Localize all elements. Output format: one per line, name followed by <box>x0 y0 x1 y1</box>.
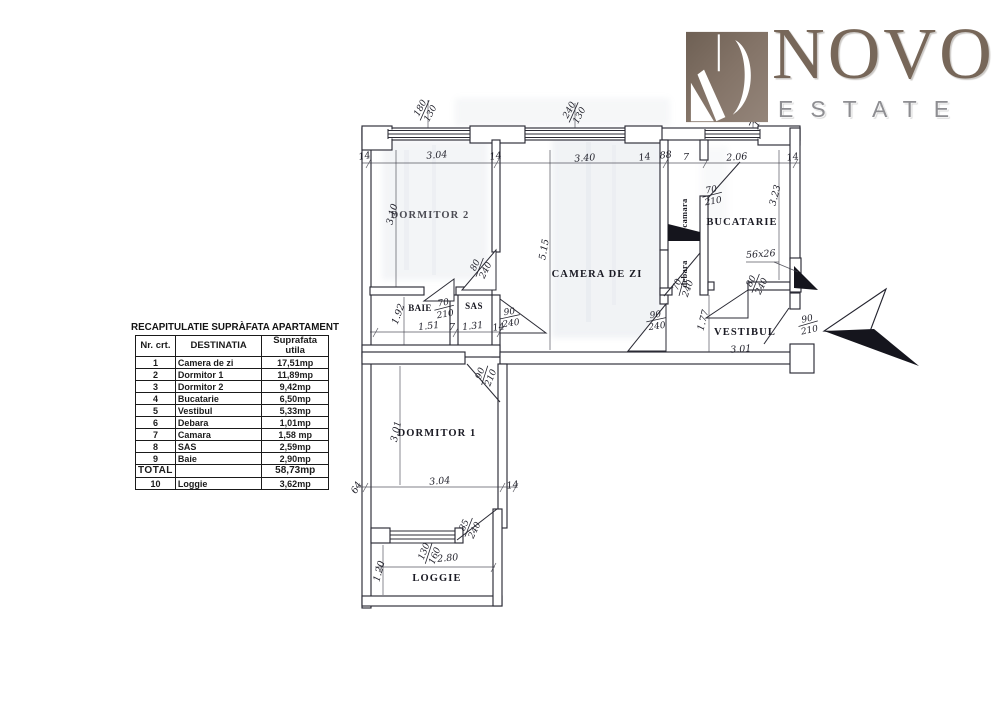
window-loggia <box>390 531 455 543</box>
table-row: 7Camara1,58 mp <box>136 429 329 441</box>
col-header-nr: Nr. crt. <box>136 336 176 357</box>
duct-wedge <box>794 266 818 290</box>
window-size-dormitor2: 180130 <box>411 96 440 126</box>
dim-loggia-height: 1.20 <box>372 560 388 583</box>
dim-camara-width: 88 <box>659 149 672 161</box>
dim-dorm1-height: 3.01 <box>389 420 404 443</box>
window-dormitor2 <box>388 129 470 139</box>
novo-estate-logo: NOVO ESTATE <box>686 28 986 128</box>
door-leaf-entrance <box>764 308 789 344</box>
dim-kitchen-height: 3.23 <box>768 184 784 207</box>
room-label-bucatarie: BUCATARIE <box>706 217 777 228</box>
table-row: 4Bucatarie6,50mp <box>136 393 329 405</box>
table-total-row: TOTAL58,73mp <box>136 465 329 478</box>
col-header-destinatia: DESTINATIA <box>175 336 261 357</box>
door-swing-baie <box>424 279 454 301</box>
area-recap-table: RECAPITULATIE SUPRÀFATA APARTAMENT Nr. c… <box>129 322 329 490</box>
dim-living-width: 3.40 <box>574 152 596 164</box>
dim-living-height: 5.15 <box>537 238 552 261</box>
table-row: 5Vestibul5,33mp <box>136 405 329 417</box>
dim-dorm1-width: 3.04 <box>429 475 451 488</box>
table-row: 2Dormitor 111,89mp <box>136 369 329 381</box>
table-row: 1Camera de zi17,51mp <box>136 357 329 369</box>
recap-table: Nr. crt. DESTINATIA Suprafata utila 1Cam… <box>135 335 329 490</box>
room-label-loggie: LOGGIE <box>412 573 461 584</box>
col-header-suprafata: Suprafata utila <box>262 336 329 357</box>
novo-monogram-icon <box>686 30 768 124</box>
logo-name: NOVO <box>772 12 995 96</box>
dim-vestibul-height: 1.77 <box>696 308 712 332</box>
room-label-dormitor1: DORMITOR 1 <box>398 428 477 439</box>
scanned-floor-plan-page: DORMITOR 2 CAMERA DE ZI BUCATARIE VESTIB… <box>0 0 998 720</box>
door-swing-kitchen-vestibul <box>706 290 748 318</box>
entrance-arrow <box>824 289 919 366</box>
dim-tick: 14 <box>638 151 652 164</box>
table-header-row: Nr. crt. DESTINATIA Suprafata utila <box>136 336 329 357</box>
door-size-entrance: 90210 <box>796 313 820 338</box>
room-label-sas: SAS <box>465 301 483 311</box>
room-label-vestibul: VESTIBUL <box>714 327 776 338</box>
dim-tick: 14 <box>358 150 372 163</box>
room-label-baie: BAIE <box>408 303 432 313</box>
room-label-dormitor2: DORMITOR 2 <box>391 210 470 221</box>
room-label-camara: camara <box>679 198 689 228</box>
table-title: RECAPITULATIE SUPRÀFATA APARTAMENT <box>131 322 327 333</box>
dim-tick: 14 <box>506 479 520 492</box>
logo-subtitle: ESTATE <box>778 96 966 123</box>
dim-tick: 7 <box>683 152 690 163</box>
dim-baie-width: 1.51 <box>418 320 440 333</box>
dim-vestibul-width: 3.01 <box>730 343 752 355</box>
dim-baie-height: 1.92 <box>390 302 408 326</box>
dim-duct-size: 56x26 <box>746 248 776 261</box>
dim-tick: 14 <box>786 151 800 164</box>
table-row: 9Baie2,90mp <box>136 453 329 465</box>
door-size-dormitor1: 90210 <box>472 363 499 390</box>
window-kitchen <box>705 129 760 139</box>
table-row: 3Dormitor 29,42mp <box>136 381 329 393</box>
table-row: 8SAS2,59mp <box>136 441 329 453</box>
svg-text:210: 210 <box>799 324 819 338</box>
window-living <box>525 129 625 139</box>
table-row: 6Debara1,01mp <box>136 417 329 429</box>
room-label-camera-de-zi: CAMERA DE ZI <box>552 269 643 280</box>
table-row: 10Loggie3,62mp <box>136 478 329 490</box>
dim-kitchen-width: 2.06 <box>725 151 748 164</box>
dim-tick: 14 <box>489 150 503 163</box>
dim-sas-width: 1.31 <box>462 320 484 333</box>
dim-tick: 7 <box>449 322 456 333</box>
dim-dorm2-width: 3.04 <box>426 149 448 161</box>
